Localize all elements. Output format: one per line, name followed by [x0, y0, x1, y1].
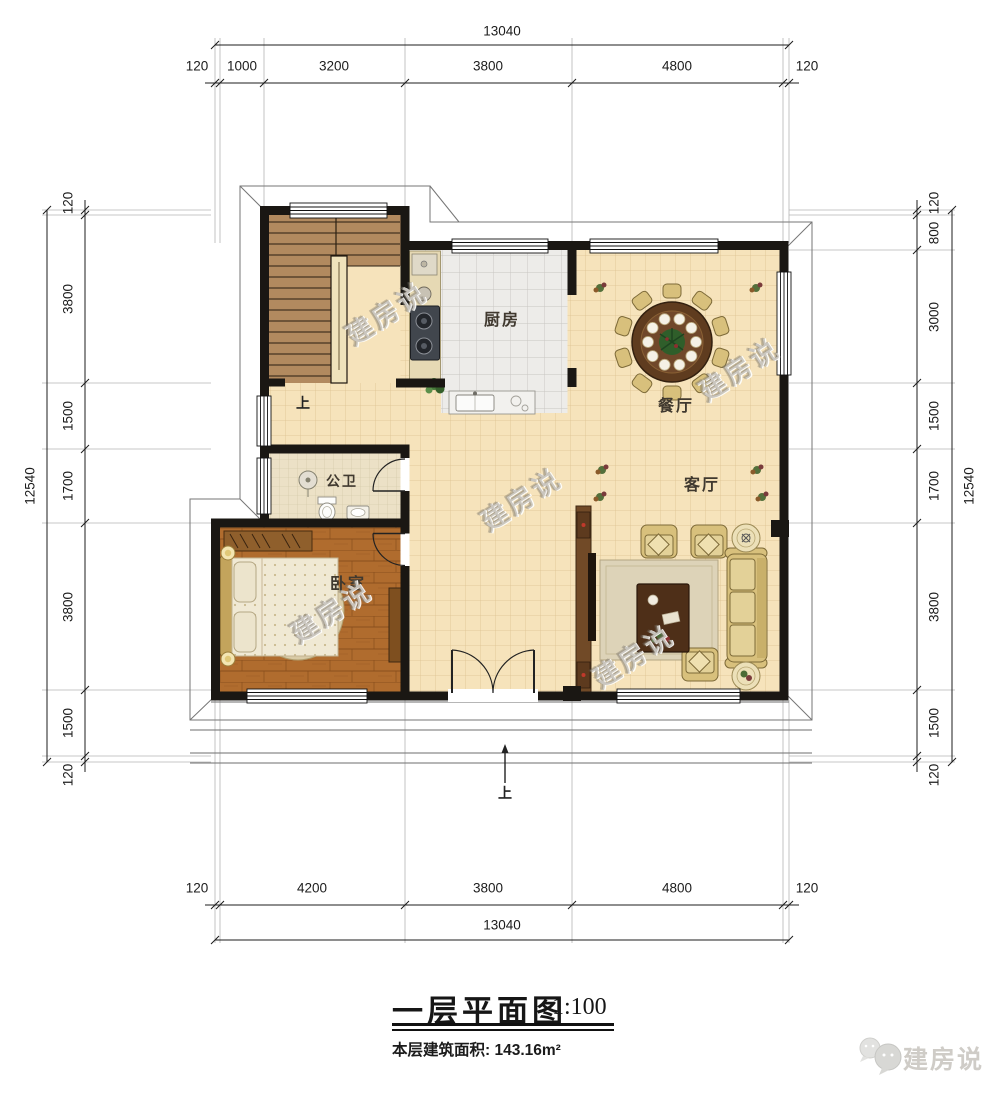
bedroom-cabinet — [389, 588, 401, 662]
entry-terrace-steps — [190, 702, 812, 763]
hall-window — [257, 396, 271, 446]
dim-bottom-seg: 120 — [186, 881, 209, 896]
dim-top-total: 13040 — [483, 24, 521, 39]
brand-logo-text: 建房说 — [903, 1040, 984, 1076]
room-label-kitchen: 厨房 — [484, 306, 520, 330]
side-table — [732, 524, 760, 552]
pillar — [771, 520, 789, 537]
floor-area-note: 本层建筑面积: 143.16m² — [392, 1038, 561, 1060]
stair-window — [290, 203, 387, 218]
toilet — [318, 497, 336, 521]
dim-bottom-seg: 3800 — [473, 881, 503, 896]
dim-right-seg: 800 — [927, 222, 942, 245]
floor-plan-page: 13040 120 1000 3200 3800 4800 120 120 42… — [0, 0, 1000, 1093]
side-table — [732, 662, 760, 690]
dim-bottom-seg: 4200 — [297, 881, 327, 896]
dim-right-seg: 3800 — [927, 592, 942, 622]
dim-left-seg: 3800 — [61, 284, 76, 314]
dim-bottom-seg: 120 — [796, 881, 819, 896]
dim-top-seg: 120 — [796, 59, 819, 74]
dim-right-seg: 1500 — [927, 401, 942, 431]
bathroom-window — [257, 458, 271, 514]
title-underline-thick — [392, 1023, 614, 1026]
dim-left-seg: 1700 — [61, 471, 76, 501]
room-label-dining: 餐厅 — [658, 392, 694, 416]
dim-bottom-total: 13040 — [483, 918, 521, 933]
dim-right-seg: 1700 — [927, 471, 942, 501]
dim-bottom-seg: 4800 — [662, 881, 692, 896]
dim-top-seg: 1000 — [227, 59, 257, 74]
room-label-living: 客厅 — [684, 471, 720, 495]
dim-top-seg: 3800 — [473, 59, 503, 74]
dining-window-top — [590, 239, 718, 253]
dim-left-seg: 120 — [61, 192, 76, 215]
armchair — [682, 648, 718, 681]
armchair — [641, 525, 677, 558]
dim-right-seg: 120 — [927, 764, 942, 787]
dim-left-seg: 3800 — [61, 592, 76, 622]
bedroom-window — [247, 689, 367, 703]
pillar — [563, 686, 581, 701]
wardrobe — [224, 531, 312, 551]
dim-left-seg: 120 — [61, 764, 76, 787]
room-label-bathroom: 公卫 — [326, 471, 358, 491]
sofa — [725, 548, 767, 668]
kitchen-window — [452, 239, 548, 253]
stairs-up-label: 上 — [296, 393, 310, 413]
armchair — [691, 525, 727, 558]
tv-screen — [588, 553, 596, 641]
dim-right-total: 12540 — [962, 467, 977, 505]
living-window — [617, 689, 740, 703]
dim-right-seg: 3000 — [927, 302, 942, 332]
dim-top-seg: 4800 — [662, 59, 692, 74]
dim-top-seg: 3200 — [319, 59, 349, 74]
title-underline-thin — [392, 1029, 614, 1031]
dim-top-seg: 120 — [186, 59, 209, 74]
entry-up-label: 上 — [498, 783, 512, 803]
dim-right-seg: 1500 — [927, 708, 942, 738]
speech-bubble-icon — [860, 1038, 901, 1075]
dim-left-total: 12540 — [23, 467, 38, 505]
dim-left-seg: 1500 — [61, 708, 76, 738]
dim-left-seg: 1500 — [61, 401, 76, 431]
drawing-scale: 1:100 — [552, 994, 607, 1021]
bathroom-sink — [347, 506, 369, 519]
dim-right-seg: 120 — [927, 192, 942, 215]
